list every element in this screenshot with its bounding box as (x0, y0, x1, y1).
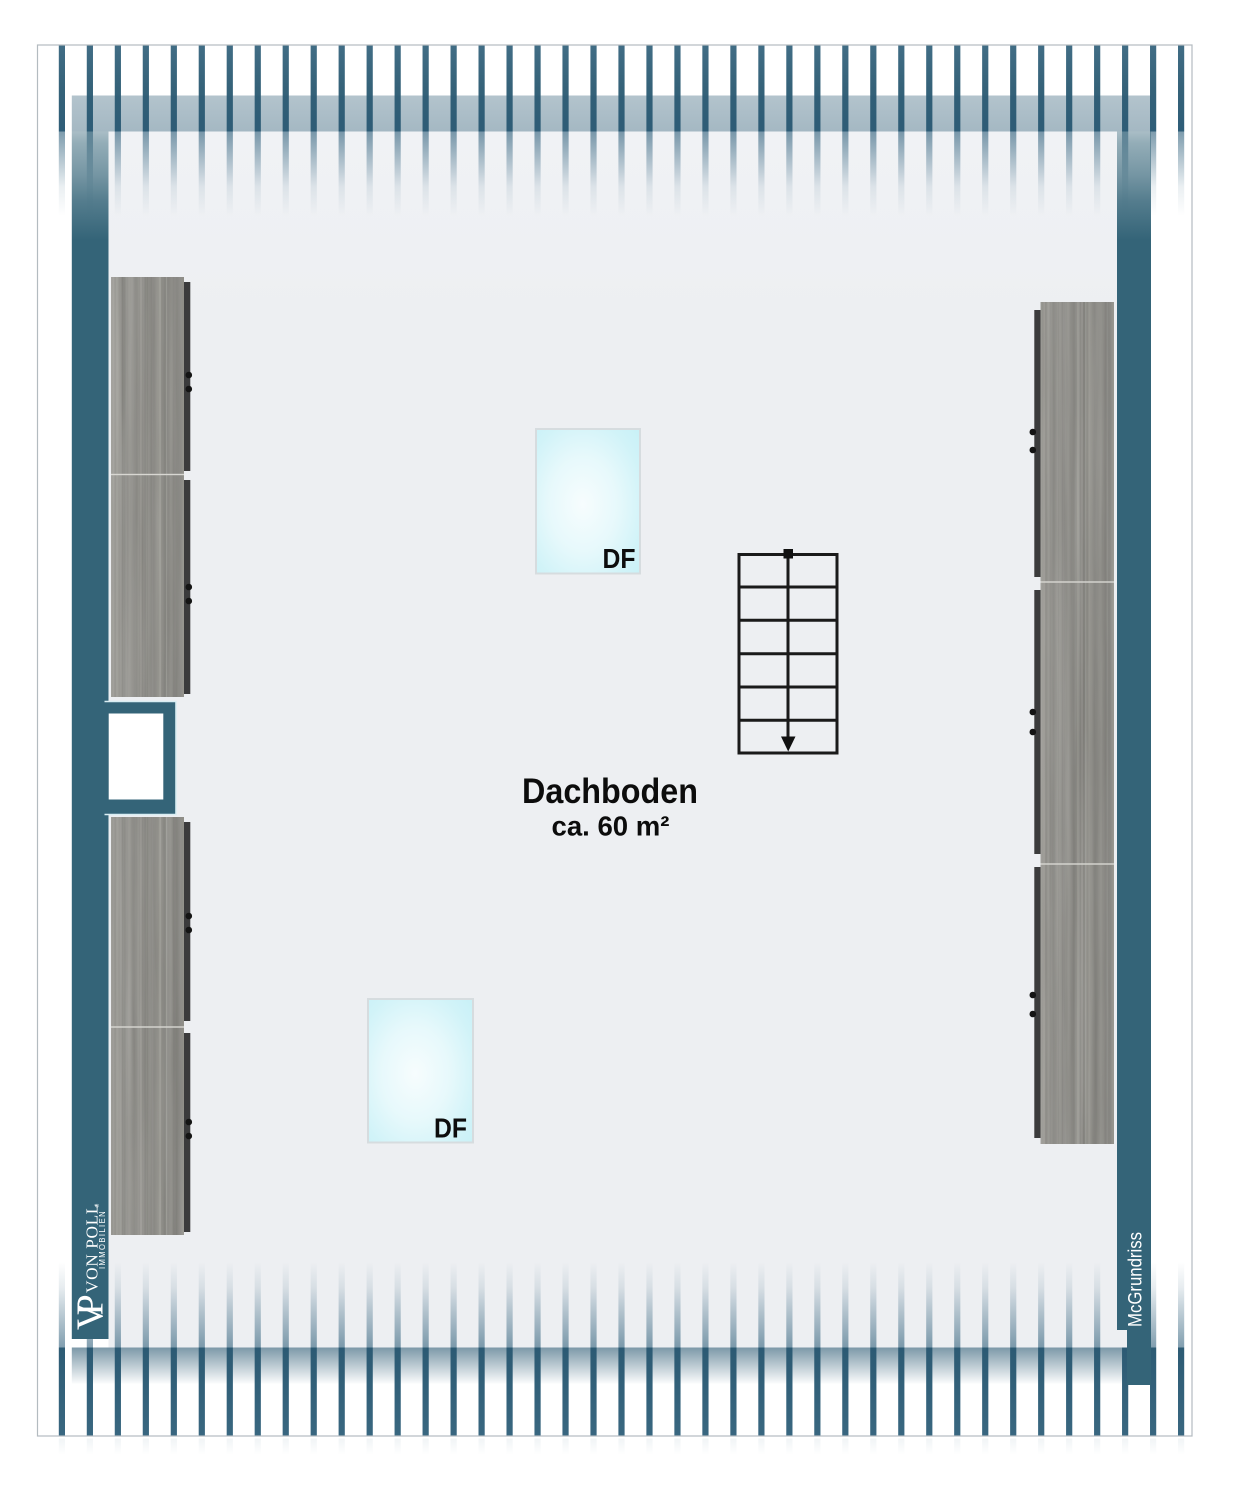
svg-text:IMMOBILIEN: IMMOBILIEN (98, 1210, 107, 1269)
svg-text:DF: DF (603, 543, 636, 574)
svg-text:ca. 60 m²: ca. 60 m² (552, 811, 670, 842)
svg-text:®: ® (94, 1204, 101, 1208)
svg-text:McGrundriss: McGrundriss (1126, 1232, 1147, 1327)
svg-text:Dachboden: Dachboden (522, 772, 698, 811)
svg-text:DF: DF (434, 1113, 467, 1144)
